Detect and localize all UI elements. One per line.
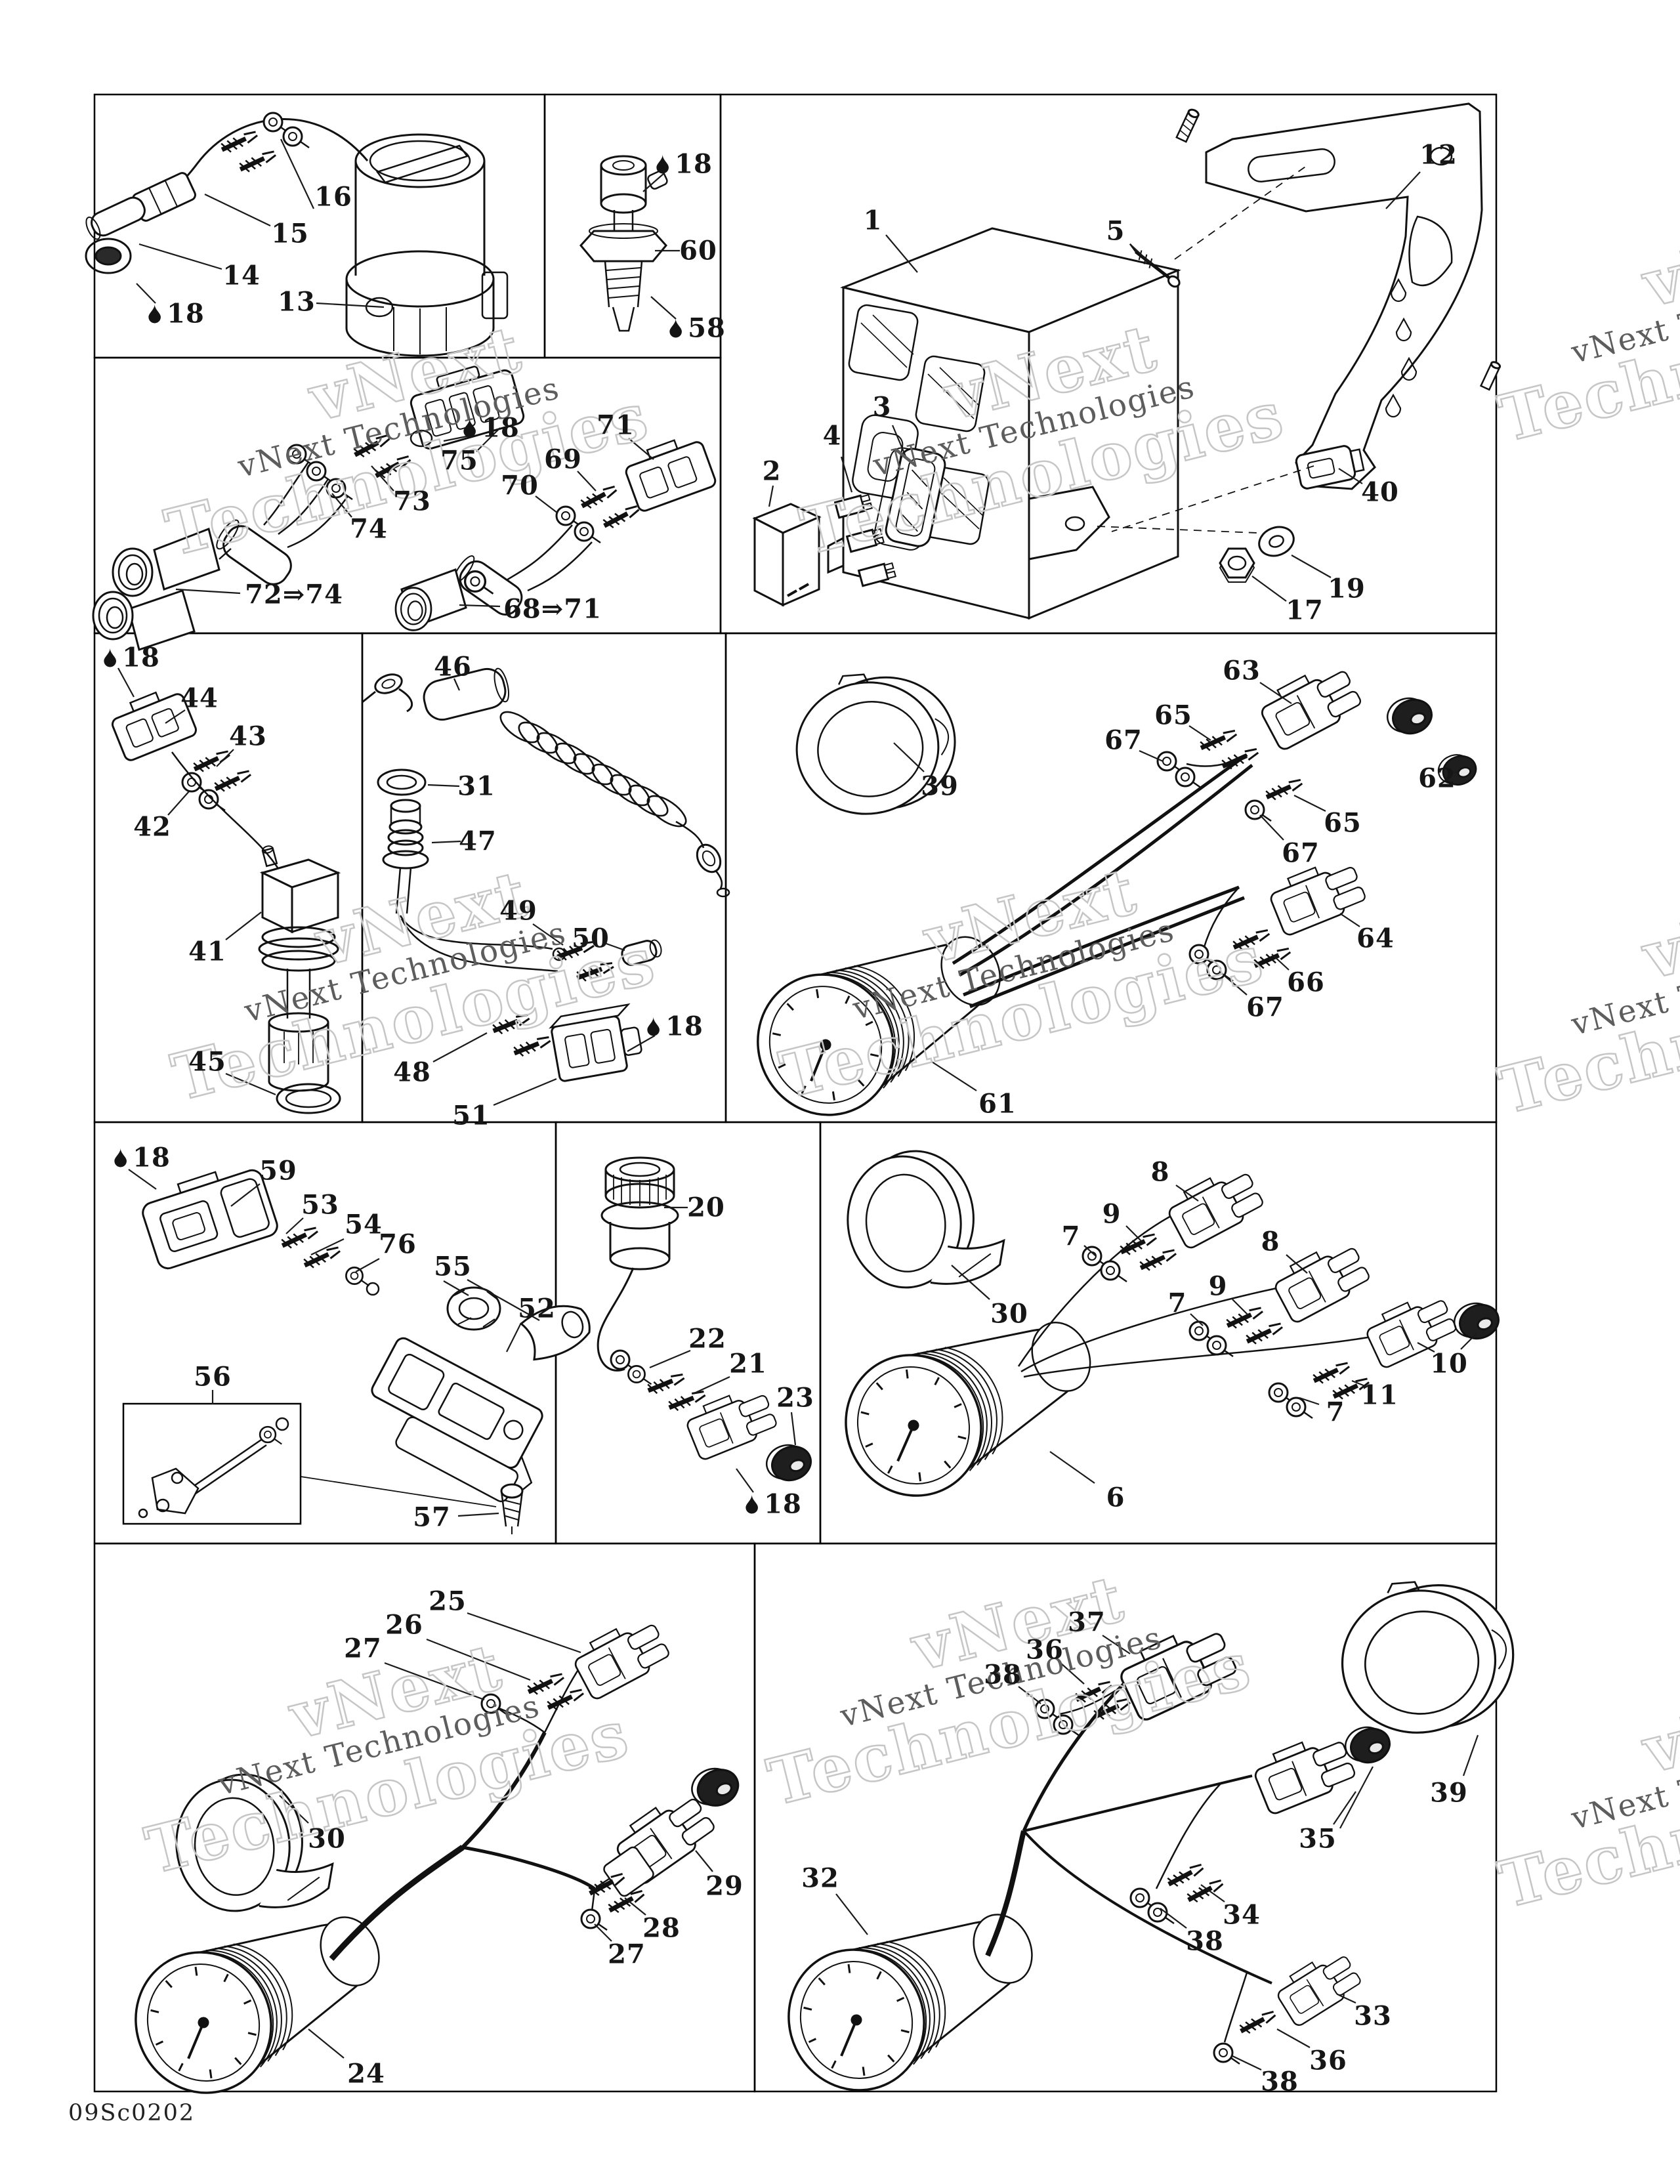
leader-line	[1084, 1246, 1096, 1256]
leader-line	[643, 173, 664, 192]
leader-line	[1386, 172, 1420, 209]
leader-line	[281, 139, 314, 209]
leader-line	[217, 749, 234, 766]
leader-line	[625, 1898, 646, 1915]
leader-line	[791, 1412, 795, 1445]
leader-line	[1294, 795, 1326, 811]
leader-line	[1231, 2055, 1261, 2070]
leader-line	[280, 1795, 308, 1823]
leader-line	[316, 303, 384, 307]
leader-line	[371, 466, 394, 491]
leader-line	[650, 1351, 690, 1368]
leader-line	[205, 194, 270, 226]
leader-line	[1463, 1735, 1478, 1776]
leader-line	[952, 1265, 990, 1299]
leader-line	[1189, 726, 1211, 740]
leader-line	[1201, 1885, 1225, 1902]
leader-line	[577, 471, 596, 491]
leader-line	[1272, 954, 1289, 970]
leader-line	[286, 1218, 303, 1234]
leader-line	[836, 1894, 868, 1935]
leader-line	[629, 438, 654, 459]
leader-line	[176, 589, 240, 593]
leader-line	[1018, 1687, 1041, 1704]
leader-line	[1060, 1663, 1084, 1684]
leader-line	[226, 912, 261, 940]
leader-line	[886, 235, 917, 272]
leader-line	[606, 944, 625, 950]
leader-line	[459, 605, 500, 606]
leader-line	[1339, 1995, 1356, 2003]
leader-line	[444, 1281, 469, 1295]
leader-line	[1050, 1452, 1095, 1483]
leader-line	[1102, 1635, 1130, 1654]
leader-line	[1139, 751, 1163, 761]
leader-line	[1417, 1343, 1435, 1352]
leader-line	[892, 425, 907, 459]
leader-line	[1339, 469, 1362, 484]
leader-line	[1160, 1908, 1186, 1928]
leader-line	[308, 2029, 344, 2058]
leader-line	[454, 679, 459, 690]
leader-line	[356, 1259, 379, 1272]
leader-line	[433, 1033, 487, 1062]
leader-line	[139, 244, 222, 269]
leader-line	[1340, 1767, 1373, 1828]
leader-line	[118, 668, 134, 697]
leader-line	[226, 1074, 276, 1095]
leader-line	[165, 710, 185, 723]
leader-line	[1232, 1299, 1248, 1315]
leader-line	[467, 1280, 539, 1320]
leader-line	[311, 1239, 344, 1255]
leader-line	[1130, 244, 1151, 264]
leader-line	[444, 436, 470, 441]
leader-line	[1277, 2029, 1310, 2047]
leader-line	[332, 493, 352, 517]
leader-line	[428, 785, 459, 786]
leader-line	[467, 1613, 581, 1652]
leader-line	[769, 486, 773, 507]
leader-line	[696, 1851, 713, 1872]
leader-line	[129, 1169, 156, 1189]
leader-line	[1219, 971, 1247, 995]
leader-line	[1126, 1226, 1142, 1242]
leader-line	[533, 924, 563, 945]
leader-line	[476, 428, 500, 451]
leader-lines-overlay	[0, 0, 1680, 2184]
leader-line	[932, 1062, 976, 1091]
leader-line	[841, 457, 852, 492]
leader-line	[136, 283, 156, 303]
leader-line	[1448, 770, 1458, 773]
leader-line	[1260, 682, 1291, 703]
leader-line	[432, 841, 461, 843]
leader-line	[1352, 1381, 1365, 1386]
leader-line	[1299, 1398, 1319, 1404]
leader-line	[1260, 815, 1284, 840]
leader-line	[493, 1079, 556, 1105]
leader-line	[231, 1184, 260, 1206]
leader-line	[385, 1663, 484, 1700]
leader-line	[696, 1377, 730, 1393]
leader-line	[507, 1323, 521, 1352]
leader-line	[651, 297, 676, 319]
leader-line	[736, 1469, 753, 1492]
document-code: 09Sc0202	[68, 2100, 195, 2126]
leader-line	[1461, 1333, 1477, 1349]
leader-line	[168, 791, 189, 815]
leader-line	[1286, 1255, 1307, 1273]
leader-line	[427, 1639, 530, 1680]
leader-line	[627, 1036, 655, 1051]
leader-line	[894, 743, 924, 772]
leader-line	[458, 1513, 499, 1516]
leader-line	[535, 496, 558, 513]
leader-line	[595, 1924, 612, 1941]
leader-line	[1190, 1314, 1203, 1326]
leader-line	[1176, 1185, 1198, 1201]
diagram-canvas: vNextvNext TechnologiesTechnologiesvNext…	[0, 0, 1680, 2184]
leader-line	[1340, 913, 1360, 927]
leader-line	[1252, 576, 1286, 601]
leader-line	[1291, 555, 1331, 577]
